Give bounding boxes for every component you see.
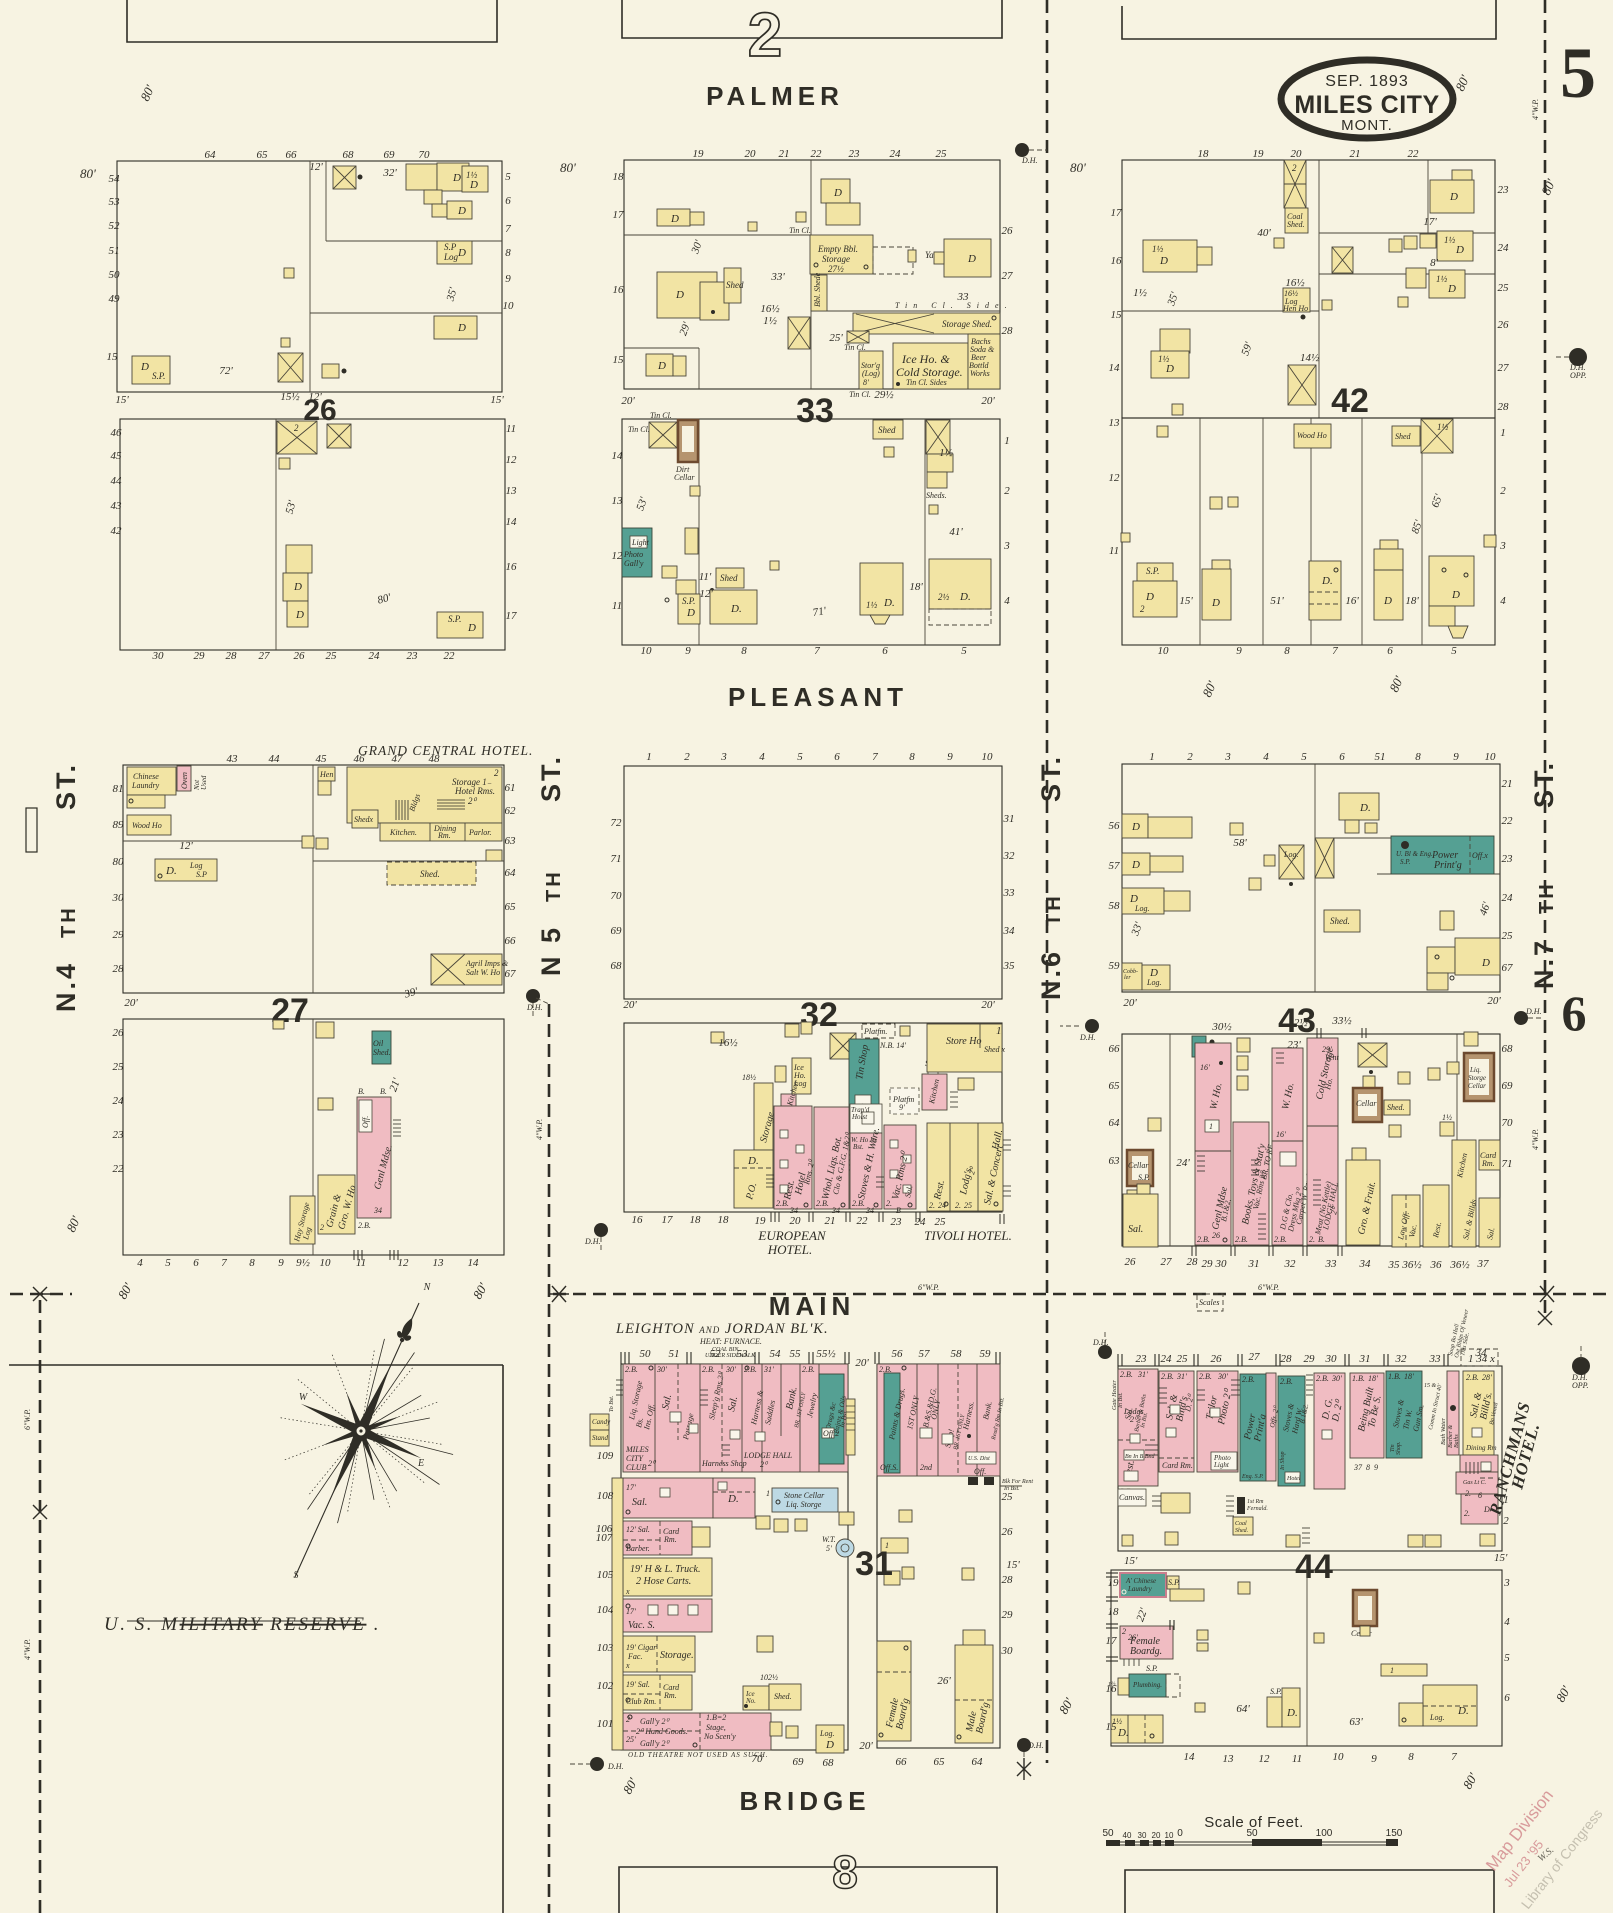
svg-text:57: 57 xyxy=(1109,860,1121,872)
svg-text:Harness Shop: Harness Shop xyxy=(701,1459,747,1468)
svg-text:24': 24' xyxy=(1176,1157,1190,1169)
svg-text:8: 8 xyxy=(1415,751,1421,763)
svg-text:44: 44 xyxy=(1295,1548,1333,1586)
svg-text:Log.: Log. xyxy=(819,1729,834,1738)
svg-text:15': 15' xyxy=(1494,1552,1508,1564)
svg-text:MILES: MILES xyxy=(625,1445,649,1454)
svg-text:Shed.: Shed. xyxy=(420,869,440,879)
svg-text:49: 49 xyxy=(109,293,121,305)
svg-text:16½: 16½ xyxy=(718,1037,737,1049)
svg-text:2: 2 xyxy=(1122,1627,1126,1636)
svg-text:2: 2 xyxy=(294,423,299,433)
svg-text:3: 3 xyxy=(1499,540,1506,552)
svg-text:2: 2 xyxy=(1140,604,1145,614)
svg-text:18: 18 xyxy=(1108,1606,1120,1618)
svg-text:2.: 2. xyxy=(1464,1509,1470,1518)
svg-text:9: 9 xyxy=(1374,1463,1378,1472)
svg-text:33: 33 xyxy=(1429,1353,1442,1365)
svg-text:D: D xyxy=(1145,591,1154,603)
svg-text:51: 51 xyxy=(109,245,120,257)
svg-text:Shed.: Shed. xyxy=(1235,1528,1248,1534)
svg-text:50: 50 xyxy=(1246,1828,1258,1839)
svg-text:Tin Cl. Side.: Tin Cl. Side. xyxy=(895,301,1013,310)
svg-text:58: 58 xyxy=(951,1348,963,1360)
svg-text:Chinese: Chinese xyxy=(133,772,159,781)
svg-text:20': 20' xyxy=(981,999,995,1011)
svg-text:54: 54 xyxy=(770,1348,782,1360)
svg-text:29½: 29½ xyxy=(874,389,893,401)
svg-text:25': 25' xyxy=(626,1735,636,1744)
svg-text:46: 46 xyxy=(111,427,123,439)
svg-text:70: 70 xyxy=(419,149,431,161)
svg-text:D.: D. xyxy=(1117,1727,1129,1739)
svg-text:57: 57 xyxy=(919,1348,931,1360)
svg-text:10: 10 xyxy=(1485,751,1497,763)
svg-text:8: 8 xyxy=(249,1257,255,1269)
svg-text:Club Rm.: Club Rm. xyxy=(626,1697,656,1706)
svg-text:46: 46 xyxy=(354,753,366,765)
svg-text:9½: 9½ xyxy=(296,1257,310,1269)
svg-text:Cellar: Cellar xyxy=(1356,1099,1377,1108)
svg-text:8: 8 xyxy=(832,1846,858,1898)
svg-text:4"W.P.: 4"W.P. xyxy=(535,1119,544,1140)
svg-text:D.: D. xyxy=(730,603,742,615)
svg-text:D.H.: D.H. xyxy=(607,1762,624,1771)
svg-text:17': 17' xyxy=(626,1483,636,1492)
svg-text:x: x xyxy=(625,1587,630,1596)
svg-text:47: 47 xyxy=(392,753,404,765)
svg-text:N.4: N.4 xyxy=(51,961,81,1012)
svg-text:20: 20 xyxy=(790,1215,802,1227)
svg-text:17: 17 xyxy=(1106,1635,1118,1647)
svg-text:D: D xyxy=(675,289,684,301)
svg-text:Vac. S.: Vac. S. xyxy=(628,1620,655,1631)
svg-text:63: 63 xyxy=(1109,1155,1121,1167)
svg-text:Rm.: Rm. xyxy=(663,1535,677,1544)
svg-text:51: 51 xyxy=(1375,751,1386,763)
svg-text:D: D xyxy=(467,622,476,634)
svg-text:5': 5' xyxy=(826,1544,832,1553)
svg-text:10: 10 xyxy=(982,751,994,763)
svg-text:25: 25 xyxy=(1177,1353,1189,1365)
svg-text:18: 18 xyxy=(613,171,625,183)
svg-text:CITY: CITY xyxy=(626,1454,644,1463)
svg-text:7: 7 xyxy=(1332,645,1338,657)
svg-text:30': 30' xyxy=(656,1365,667,1374)
svg-text:13: 13 xyxy=(612,495,624,507)
svg-text:1: 1 xyxy=(996,1025,1002,1037)
svg-text:2.B.: 2.B. xyxy=(625,1365,638,1374)
svg-text:25: 25 xyxy=(936,148,948,160)
svg-text:33: 33 xyxy=(1003,887,1016,899)
svg-text:12': 12' xyxy=(309,161,323,173)
svg-text:24: 24 xyxy=(369,650,381,662)
svg-text:Hen Ho: Hen Ho xyxy=(1282,304,1308,313)
svg-text:6: 6 xyxy=(1504,1692,1510,1704)
svg-text:42: 42 xyxy=(1331,382,1369,420)
svg-text:4"W.P.: 4"W.P. xyxy=(23,1639,32,1660)
svg-text:2.B.: 2.B. xyxy=(816,1199,829,1208)
svg-text:x: x xyxy=(625,1661,630,1670)
svg-text:19: 19 xyxy=(693,148,705,160)
svg-text:53: 53 xyxy=(737,1348,749,1360)
svg-text:Wood Ho: Wood Ho xyxy=(1297,431,1327,440)
svg-text:Light: Light xyxy=(1213,1461,1230,1469)
svg-text:13: 13 xyxy=(1223,1753,1235,1765)
svg-text:PLEASANT: PLEASANT xyxy=(728,682,908,712)
svg-text:36: 36 xyxy=(1430,1259,1443,1271)
svg-text:27: 27 xyxy=(1498,362,1510,374)
svg-text:33: 33 xyxy=(1325,1258,1338,1270)
svg-text:U. S. MILITARY RESERVE .: U. S. MILITARY RESERVE . xyxy=(104,1614,381,1635)
svg-text:Stage,: Stage, xyxy=(706,1723,726,1732)
svg-text:10: 10 xyxy=(1158,645,1170,657)
svg-text:15: 15 xyxy=(1111,309,1123,321)
svg-text:TH: TH xyxy=(543,869,565,902)
svg-text:29: 29 xyxy=(113,929,125,941)
svg-text:26: 26 xyxy=(1212,1231,1220,1240)
svg-text:Gall'y 2⁰: Gall'y 2⁰ xyxy=(640,1717,670,1726)
svg-text:2.B.: 2.B. xyxy=(852,1199,865,1208)
svg-text:Salt W. Ho: Salt W. Ho xyxy=(466,968,500,977)
svg-text:ler: ler xyxy=(1124,975,1131,981)
svg-text:Liq.: Liq. xyxy=(1469,1066,1481,1074)
svg-text:D: D xyxy=(657,360,666,372)
svg-text:72': 72' xyxy=(219,365,233,377)
svg-text:1: 1 xyxy=(1004,435,1010,447)
svg-text:67: 67 xyxy=(505,968,517,980)
svg-text:33': 33' xyxy=(770,271,785,283)
svg-text:69: 69 xyxy=(793,1756,805,1768)
svg-text:10: 10 xyxy=(641,645,653,657)
svg-text:2.B.: 2.B. xyxy=(1316,1374,1329,1383)
svg-text:26: 26 xyxy=(1125,1256,1137,1268)
svg-text:5: 5 xyxy=(797,751,803,763)
svg-text:22: 22 xyxy=(1408,148,1420,160)
svg-text:OPP.: OPP. xyxy=(1570,371,1587,380)
svg-text:1½: 1½ xyxy=(939,447,953,459)
svg-text:35: 35 xyxy=(1388,1259,1401,1271)
svg-text:8: 8 xyxy=(1284,645,1290,657)
svg-text:8': 8' xyxy=(1430,257,1439,269)
svg-text:12: 12 xyxy=(506,454,518,466)
svg-text:54: 54 xyxy=(109,173,121,185)
svg-text:LEIGHTON AND JORDAN BL'K.: LEIGHTON AND JORDAN BL'K. xyxy=(615,1321,829,1337)
svg-text:1½: 1½ xyxy=(1437,422,1449,432)
svg-text:D.H.: D.H. xyxy=(1525,1007,1542,1016)
svg-text:1½: 1½ xyxy=(1133,287,1147,299)
svg-text:4: 4 xyxy=(137,1257,143,1269)
svg-text:D: D xyxy=(140,361,149,373)
svg-text:31: 31 xyxy=(855,1545,893,1583)
svg-text:24: 24 xyxy=(1502,892,1514,904)
svg-text:31': 31' xyxy=(1137,1370,1148,1379)
svg-text:66: 66 xyxy=(896,1756,908,1768)
svg-text:20': 20' xyxy=(855,1357,869,1369)
svg-text:0: 0 xyxy=(1177,1828,1183,1839)
svg-text:Scales: Scales xyxy=(1199,1298,1219,1307)
svg-text:2: 2 xyxy=(320,1223,324,1232)
svg-text:Hoist: Hoist xyxy=(851,1113,868,1121)
svg-text:2.B.: 2.B. xyxy=(1120,1370,1133,1379)
svg-text:15½: 15½ xyxy=(280,391,299,403)
svg-text:11: 11 xyxy=(1292,1753,1302,1765)
svg-text:2.B.: 2.B. xyxy=(1466,1373,1479,1382)
svg-text:B.: B. xyxy=(380,1087,387,1096)
svg-text:D.H.: D.H. xyxy=(1079,1033,1096,1042)
svg-text:37: 37 xyxy=(1477,1258,1490,1270)
svg-text:70: 70 xyxy=(752,1753,764,1765)
svg-text:9: 9 xyxy=(1453,751,1459,763)
svg-text:16: 16 xyxy=(1106,1683,1118,1695)
svg-text:D: D xyxy=(457,322,466,334)
svg-text:A' Chinese: A' Chinese xyxy=(1125,1577,1156,1585)
svg-text:33: 33 xyxy=(796,392,834,430)
svg-text:9: 9 xyxy=(685,645,691,657)
svg-text:12: 12 xyxy=(1109,472,1121,484)
svg-text:Shedx: Shedx xyxy=(354,815,374,824)
svg-text:26: 26 xyxy=(294,650,306,662)
svg-text:2: 2 xyxy=(494,768,499,778)
svg-text:7: 7 xyxy=(814,645,820,657)
svg-text:D.H.: D.H. xyxy=(1021,156,1038,165)
svg-text:N.B. 14': N.B. 14' xyxy=(879,1041,906,1050)
svg-text:U. Bl & Eng.: U. Bl & Eng. xyxy=(1396,850,1433,858)
svg-text:20: 20 xyxy=(1152,1831,1161,1840)
svg-text:N 5: N 5 xyxy=(536,925,566,976)
svg-text:2.B.: 2.B. xyxy=(802,1365,815,1374)
svg-text:Card Rm.: Card Rm. xyxy=(1162,1461,1193,1470)
svg-text:28: 28 xyxy=(1498,401,1510,413)
svg-text:2: 2 xyxy=(748,1,782,70)
svg-text:17: 17 xyxy=(506,610,518,622)
svg-text:Baths: Baths xyxy=(1454,1434,1460,1448)
svg-text:Off.: Off. xyxy=(974,1467,986,1476)
svg-text:14: 14 xyxy=(1109,362,1121,374)
svg-text:Tin Cl.: Tin Cl. xyxy=(628,425,650,434)
svg-text:BRIDGE: BRIDGE xyxy=(739,1786,870,1816)
svg-text:To Bst.: To Bst. xyxy=(609,1396,615,1412)
svg-text:21: 21 xyxy=(825,1215,836,1227)
svg-text:1½: 1½ xyxy=(1444,235,1456,245)
svg-text:5: 5 xyxy=(505,171,511,183)
svg-text:D: D xyxy=(1131,821,1140,833)
svg-text:8: 8 xyxy=(1408,1751,1414,1763)
svg-text:8: 8 xyxy=(909,751,915,763)
svg-text:100: 100 xyxy=(1316,1828,1333,1839)
svg-text:D: D xyxy=(1449,191,1458,203)
svg-text:Log.: Log. xyxy=(1429,1713,1444,1722)
svg-text:56: 56 xyxy=(892,1348,904,1360)
svg-text:5: 5 xyxy=(165,1257,171,1269)
svg-text:12': 12' xyxy=(179,840,193,852)
svg-text:16': 16' xyxy=(1200,1063,1210,1072)
svg-text:Tin Cl.: Tin Cl. xyxy=(849,390,871,399)
svg-text:31: 31 xyxy=(1003,813,1015,825)
svg-text:MONT.: MONT. xyxy=(1341,117,1393,134)
svg-text:Wood Ho: Wood Ho xyxy=(132,821,162,830)
svg-text:9: 9 xyxy=(1236,645,1242,657)
svg-text:Ice Ho. &: Ice Ho. & xyxy=(901,352,950,366)
svg-text:30': 30' xyxy=(1331,1374,1342,1383)
svg-text:20': 20' xyxy=(1487,995,1501,1007)
svg-text:2.B.: 2.B. xyxy=(1199,1372,1212,1381)
svg-text:66: 66 xyxy=(1109,1043,1121,1055)
svg-text:44: 44 xyxy=(111,475,123,487)
svg-text:S.P.: S.P. xyxy=(1146,1664,1158,1673)
svg-text:2.B.: 2.B. xyxy=(1280,1377,1293,1386)
svg-text:U.S. Dist: U.S. Dist xyxy=(968,1456,990,1462)
svg-text:20': 20' xyxy=(621,395,635,407)
svg-text:S.P.: S.P. xyxy=(152,371,165,381)
svg-text:Shed.: Shed. xyxy=(373,1048,391,1057)
svg-text:4: 4 xyxy=(1504,1616,1510,1628)
svg-text:S.P.: S.P. xyxy=(1138,1173,1150,1182)
svg-text:62: 62 xyxy=(505,805,517,817)
svg-text:Log.: Log. xyxy=(1146,978,1161,987)
svg-text:50: 50 xyxy=(109,269,121,281)
svg-text:1: 1 xyxy=(646,751,652,763)
svg-text:26': 26' xyxy=(937,1675,951,1687)
svg-text:Sal.: Sal. xyxy=(1128,1224,1143,1235)
svg-text:E: E xyxy=(417,1458,424,1469)
svg-text:D.: D. xyxy=(959,591,971,603)
svg-text:Stand: Stand xyxy=(592,1434,608,1442)
svg-text:26: 26 xyxy=(1002,1526,1014,1538)
svg-text:9: 9 xyxy=(1371,1753,1377,1765)
svg-text:34: 34 xyxy=(831,1206,840,1215)
svg-text:65: 65 xyxy=(505,901,517,913)
svg-text:Storage: Storage xyxy=(822,254,850,264)
svg-text:3: 3 xyxy=(1003,540,1010,552)
svg-text:30: 30 xyxy=(152,650,165,662)
svg-text:D.: D. xyxy=(1321,575,1333,587)
svg-text:31: 31 xyxy=(1359,1353,1371,1365)
svg-text:ST.: ST. xyxy=(536,754,566,802)
svg-text:68: 68 xyxy=(611,960,623,972)
svg-text:26: 26 xyxy=(1002,225,1014,237)
svg-text:44: 44 xyxy=(269,753,281,765)
svg-text:5: 5 xyxy=(961,645,967,657)
svg-text:16: 16 xyxy=(506,561,518,573)
svg-text:Kitchen.: Kitchen. xyxy=(389,828,417,837)
svg-text:18': 18' xyxy=(1368,1374,1378,1383)
svg-text:19: 19 xyxy=(1108,1577,1120,1589)
svg-text:23: 23 xyxy=(1136,1353,1148,1365)
svg-text:30: 30 xyxy=(1138,1831,1147,1840)
svg-text:43: 43 xyxy=(111,500,123,512)
svg-text:D: D xyxy=(1383,595,1392,607)
svg-text:63: 63 xyxy=(505,835,517,847)
svg-text:D.: D. xyxy=(1359,802,1371,814)
svg-text:15': 15' xyxy=(1124,1555,1138,1567)
svg-text:D: D xyxy=(1211,597,1220,609)
svg-text:Log.: Log. xyxy=(1283,850,1298,859)
svg-text:21: 21 xyxy=(1350,148,1361,160)
svg-text:Log.: Log. xyxy=(1134,904,1149,913)
svg-text:70: 70 xyxy=(611,890,623,902)
svg-text:30: 30 xyxy=(1215,1258,1228,1270)
svg-text:70: 70 xyxy=(1502,1117,1514,1129)
svg-text:15': 15' xyxy=(1179,595,1193,607)
svg-text:D.H.: D.H. xyxy=(1092,1338,1109,1347)
svg-text:D.H.: D.H. xyxy=(584,1237,601,1246)
svg-text:30: 30 xyxy=(1325,1353,1338,1365)
svg-text:34: 34 xyxy=(1003,925,1016,937)
svg-text:35: 35 xyxy=(1003,960,1016,972)
svg-text:2.B.: 2.B. xyxy=(358,1221,371,1230)
svg-text:Shed: Shed xyxy=(726,280,744,290)
svg-text:Works: Works xyxy=(970,369,990,378)
svg-text:Store Ho: Store Ho xyxy=(946,1036,981,1047)
svg-text:17': 17' xyxy=(1423,216,1437,228)
svg-text:4"W.P.: 4"W.P. xyxy=(1531,99,1540,120)
svg-text:6"W.P.: 6"W.P. xyxy=(918,1283,939,1292)
svg-text:32: 32 xyxy=(1284,1258,1297,1270)
svg-text:103: 103 xyxy=(597,1642,614,1654)
svg-text:71': 71' xyxy=(812,605,828,619)
svg-text:Plumbing.: Plumbing. xyxy=(1132,1681,1162,1689)
svg-text:16': 16' xyxy=(1276,1130,1286,1139)
svg-text:58: 58 xyxy=(1109,900,1121,912)
svg-text:6: 6 xyxy=(1562,985,1587,1041)
svg-text:Cold Storage.: Cold Storage. xyxy=(896,365,963,379)
svg-text:55½: 55½ xyxy=(816,1348,835,1360)
svg-text:64': 64' xyxy=(1236,1703,1250,1715)
svg-text:1: 1 xyxy=(1503,1494,1509,1506)
svg-text:2.B.: 2.B. xyxy=(879,1365,892,1374)
svg-text:9: 9 xyxy=(278,1257,284,1269)
svg-text:Used: Used xyxy=(200,775,208,790)
svg-text:1: 1 xyxy=(1500,427,1506,439)
svg-text:32': 32' xyxy=(382,167,397,179)
svg-text:27: 27 xyxy=(259,650,271,662)
svg-text:CLUB: CLUB xyxy=(626,1463,647,1472)
svg-text:Log: Log xyxy=(189,861,202,870)
svg-text:13: 13 xyxy=(1109,417,1121,429)
svg-text:68: 68 xyxy=(343,149,355,161)
svg-text:150: 150 xyxy=(1386,1828,1403,1839)
svg-text:Platfm.: Platfm. xyxy=(863,1027,887,1036)
svg-text:No Scen'y: No Scen'y xyxy=(703,1732,736,1741)
svg-text:24: 24 xyxy=(890,148,902,160)
svg-text:80': 80' xyxy=(1070,160,1086,175)
svg-text:5: 5 xyxy=(1301,751,1307,763)
svg-text:30': 30' xyxy=(725,1365,736,1374)
svg-text:31': 31' xyxy=(1176,1372,1187,1381)
svg-text:19: 19 xyxy=(1253,148,1265,160)
svg-text:Hotel Rms.: Hotel Rms. xyxy=(454,786,495,796)
svg-text:9: 9 xyxy=(505,273,511,285)
svg-text:107: 107 xyxy=(596,1532,613,1544)
svg-text:16': 16' xyxy=(1345,595,1359,607)
svg-text:34: 34 xyxy=(865,1206,874,1215)
svg-text:1.B=2: 1.B=2 xyxy=(706,1713,726,1722)
svg-text:18': 18' xyxy=(1405,595,1419,607)
svg-text:4: 4 xyxy=(759,751,765,763)
svg-text:B.: B. xyxy=(358,1087,365,1096)
svg-text:19' Cigar: 19' Cigar xyxy=(626,1643,657,1652)
svg-text:Tin Cl. Sides: Tin Cl. Sides xyxy=(906,378,947,387)
svg-text:D: D xyxy=(457,205,466,217)
svg-text:6: 6 xyxy=(834,751,840,763)
svg-text:36½: 36½ xyxy=(1401,1259,1421,1271)
svg-text:2.B.: 2.B. xyxy=(1197,1235,1210,1244)
svg-text:2.B.: 2.B. xyxy=(776,1199,789,1208)
svg-text:2.: 2. xyxy=(886,1199,892,1208)
svg-text:Gall'y: Gall'y xyxy=(624,559,644,568)
svg-text:80': 80' xyxy=(80,166,96,181)
